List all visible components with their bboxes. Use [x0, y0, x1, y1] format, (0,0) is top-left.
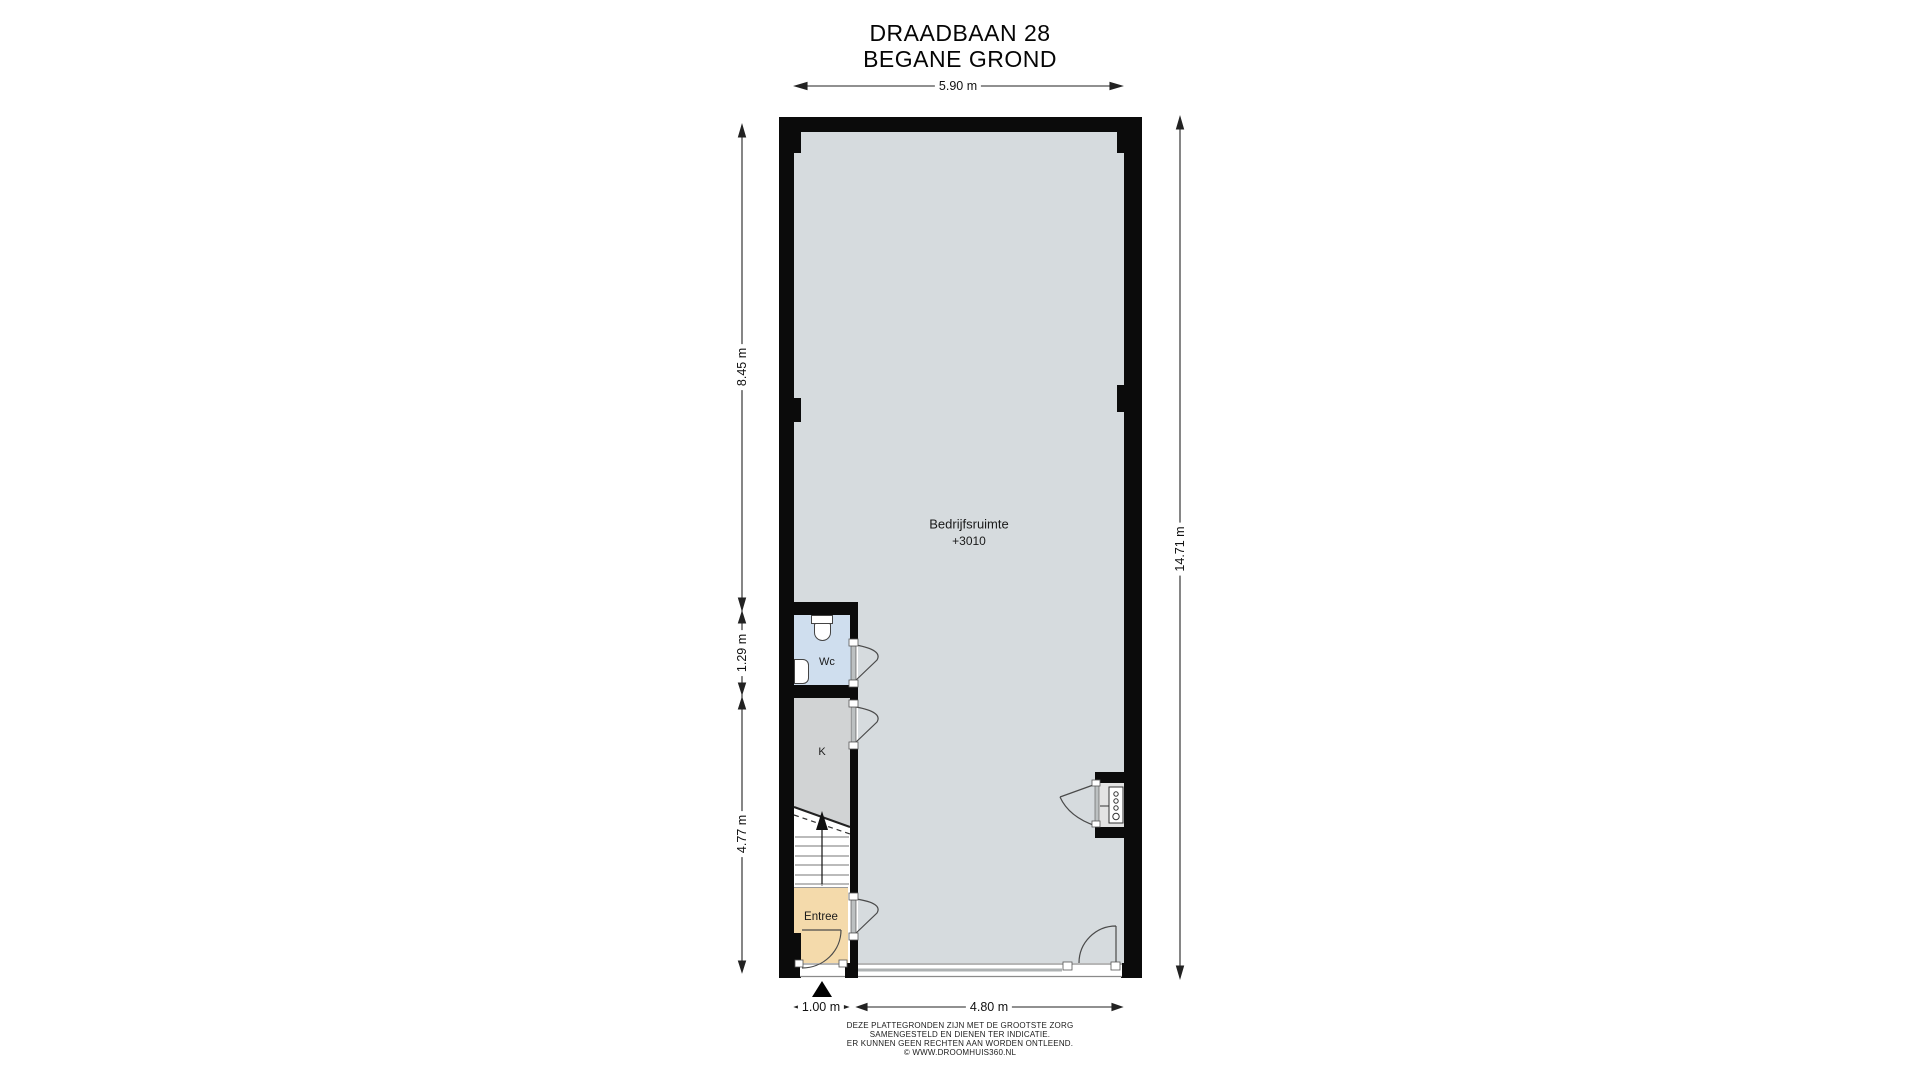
wall-left — [779, 117, 794, 978]
wall-wc-top — [794, 602, 858, 615]
wall-inner-seg1 — [850, 615, 858, 640]
wall-bottom-right-corner — [1121, 963, 1142, 978]
wall-top — [779, 117, 1142, 132]
wall-inner-seg3 — [850, 749, 858, 894]
disclaimer-line-4: © WWW.DROOMHUIS360.NL — [0, 1048, 1920, 1057]
label-kitchen: K — [818, 746, 825, 758]
pilaster-top-left — [794, 132, 801, 153]
disclaimer-line-1: DEZE PLATTEGRONDEN ZIJN MET DE GROOTSTE … — [0, 1021, 1920, 1030]
disclaimer-line-2: SAMENGESTELD EN DIENEN TER INDICATIE. — [0, 1030, 1920, 1039]
pilaster-mid-right — [1117, 385, 1124, 412]
label-main-room: Bedrijfsruimte — [929, 517, 1008, 532]
label-main-room-level: +3010 — [952, 534, 986, 548]
wall-bottom-left-corner — [779, 963, 801, 978]
entrance-arrow-icon — [812, 981, 832, 997]
room-main-lower — [858, 602, 1124, 963]
wall-right — [1124, 117, 1142, 978]
wall-bottom-pier — [845, 963, 858, 978]
entrance-door-sill — [800, 963, 845, 977]
pilaster-top-right — [1117, 132, 1124, 153]
pilaster-mid-left — [794, 398, 801, 422]
wall-inner-seg2 — [850, 686, 858, 701]
dim-label-bottom-entrance: 1.00 m — [798, 1000, 844, 1014]
wall-wc-kitchen-divider — [794, 685, 858, 698]
dim-label-left-upper: 8.45 m — [735, 344, 749, 390]
dim-label-left-mid: 1.29 m — [735, 630, 749, 676]
wall-inner-seg4 — [850, 940, 858, 963]
disclaimer-line-3: ER KUNNEN GEEN RECHTEN AAN WORDEN ONTLEE… — [0, 1039, 1920, 1048]
dim-label-top-width: 5.90 m — [935, 79, 981, 93]
staircase-area — [794, 807, 850, 887]
glass-facade — [858, 963, 1122, 977]
toilet-icon — [811, 615, 833, 641]
disclaimer: DEZE PLATTEGRONDEN ZIJN MET DE GROOTSTE … — [0, 1021, 1920, 1057]
dim-label-bottom-front: 4.80 m — [966, 1000, 1012, 1014]
floorplan-page: DRAADBAAN 28 BEGANE GROND — [0, 0, 1920, 1080]
pier-entrance-left — [794, 933, 801, 963]
room-main-upper — [794, 132, 1124, 602]
dim-label-left-lower: 4.77 m — [735, 811, 749, 857]
label-wc: Wc — [819, 656, 835, 668]
staircase-treads — [795, 831, 849, 886]
sink-icon — [794, 659, 809, 684]
page-subtitle: BEGANE GROND — [0, 46, 1920, 73]
stair-cut-line — [794, 807, 850, 827]
dim-label-right-height: 14.71 m — [1173, 522, 1187, 575]
room-kitchen — [794, 698, 850, 827]
page-title: DRAADBAAN 28 — [0, 20, 1920, 47]
room-entrance — [794, 887, 848, 963]
stair-direction-arrow-icon — [816, 811, 828, 884]
label-entrance: Entree — [804, 911, 838, 923]
stair-cut-dashed-line — [794, 815, 850, 834]
